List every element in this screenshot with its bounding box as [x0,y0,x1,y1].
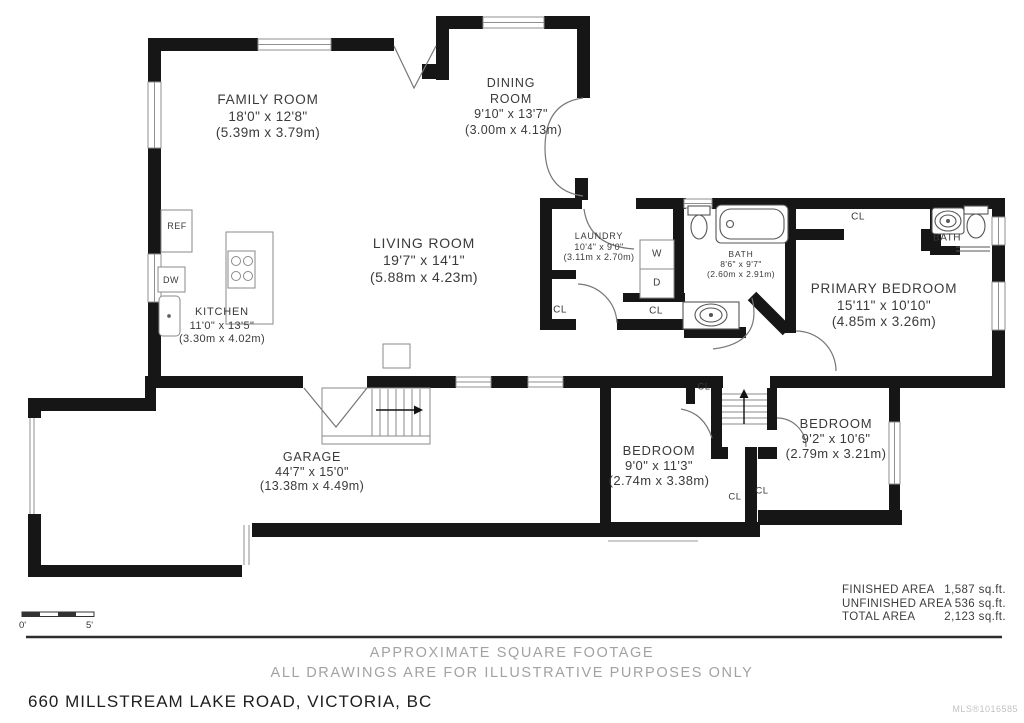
room-label-bedroom2: BEDROOM 9'2" x 10'6" (2.79m x 3.21m) [786,416,887,461]
area-row-unfinished: UNFINISHED AREA 536 sq.ft. [842,598,1006,612]
area-value: 1,587 sq.ft. [944,584,1006,598]
diagonal-wall [752,296,787,331]
room-label-family: FAMILY ROOM 18'0" x 12'8" (5.39m x 3.79m… [216,92,320,142]
label-closet-stairs: CL [697,382,710,393]
room-label-kitchen: KITCHEN 11'0" x 13'5" (3.30m x 4.02m) [179,306,265,347]
disclaimer-line2: ALL DRAWINGS ARE FOR ILLUSTRATIVE PURPOS… [0,665,1024,681]
label-washer: W [652,249,662,260]
scale-end-label: 5' [86,620,93,631]
mls-number: MLS®1016585 [952,704,1018,714]
scale-bar [22,612,94,617]
room-label-primary: PRIMARY BEDROOM 15'11" x 10'10" (4.85m x… [811,281,958,331]
label-closet-laundry: CL [553,305,567,316]
area-value: 536 sq.ft. [955,598,1006,612]
label-refrigerator: REF [167,221,187,231]
room-label-bedroom1: BEDROOM 9'0" x 11'3" (2.74m x 3.38m) [609,443,710,488]
area-label: FINISHED AREA [842,584,935,598]
label-dishwasher: DW [163,275,179,285]
area-summary: FINISHED AREA 1,587 sq.ft. UNFINISHED AR… [842,584,1006,625]
area-label: UNFINISHED AREA [842,598,952,612]
room-label-bath-ensuite: BATH [933,233,961,244]
label-closet-primary: CL [851,212,865,223]
scale-start-label: 0' [19,620,26,631]
room-label-garage: GARAGE 44'7" x 15'0" (13.38m x 4.49m) [260,450,364,494]
label-closet-bedroom2: CL [755,486,768,497]
fireplace-outline [383,344,410,368]
area-value: 2,123 sq.ft. [944,611,1006,625]
area-row-total: TOTAL AREA 2,123 sq.ft. [842,611,1006,625]
room-label-laundry: LAUNDRY 10'4" x 9'0" (3.11m x 2.70m) [564,231,635,263]
label-closet-hall: CL [649,306,663,317]
property-address: 660 MILLSTREAM LAKE ROAD, VICTORIA, BC [28,692,432,712]
area-row-finished: FINISHED AREA 1,587 sq.ft. [842,584,1006,598]
room-label-living: LIVING ROOM 19'7" x 14'1" (5.88m x 4.23m… [370,235,478,286]
stair-arrow-head [414,406,423,415]
room-label-bath-main: BATH 8'6" x 9'7" (2.60m x 2.91m) [707,249,775,279]
floor-plan-page: FAMILY ROOM 18'0" x 12'8" (5.39m x 3.79m… [0,0,1024,723]
label-dryer: D [653,278,661,289]
stairs-garage [322,388,430,444]
disclaimer-line1: APPROXIMATE SQUARE FOOTAGE [0,645,1024,661]
area-label: TOTAL AREA [842,611,915,625]
label-closet-bedroom1: CL [728,492,741,503]
room-label-dining: DINING ROOM 9'10" x 13'7" (3.00m x 4.13m… [465,76,557,138]
